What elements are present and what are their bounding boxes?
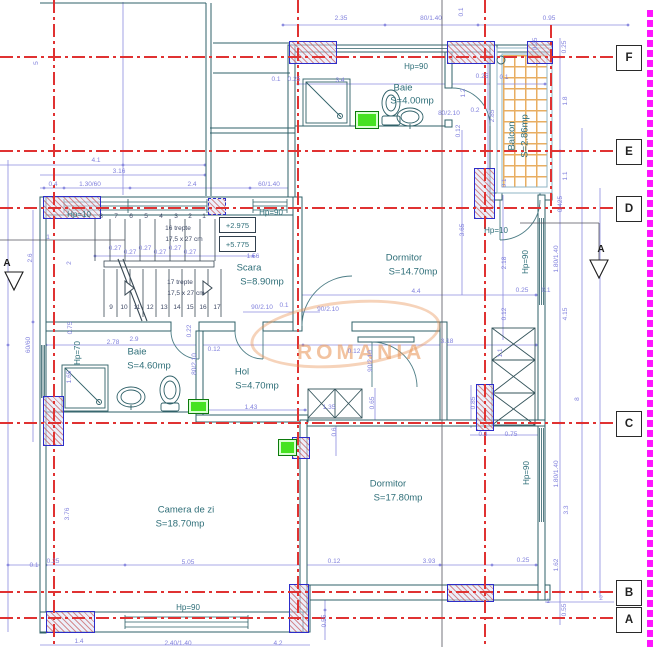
dim-label: 0.1 bbox=[541, 288, 550, 295]
dim-label: 3.76 bbox=[65, 508, 72, 521]
dim-label: 0.25 bbox=[517, 558, 530, 565]
dim-label: 2.78 bbox=[107, 340, 120, 347]
dim-label: 3.18 bbox=[441, 339, 454, 346]
dim-label: 80/2.10 bbox=[438, 111, 460, 118]
dim-label: 1.56 bbox=[247, 254, 260, 261]
dim-label: 1.2 bbox=[461, 88, 468, 97]
dim-label: 0.22 bbox=[187, 325, 194, 338]
stair-number: 9 bbox=[109, 305, 113, 312]
room-label: Hol bbox=[235, 367, 249, 377]
labels-layer: 2.3580/1.400.9550.10.250.250.10.250.250.… bbox=[0, 0, 656, 647]
dim-label: 1.62 bbox=[554, 559, 561, 572]
dim-label: 5.05 bbox=[182, 560, 195, 567]
section-letter: A bbox=[3, 259, 10, 269]
dim-label: 60/1.40 bbox=[258, 182, 280, 189]
stair-number: 17 bbox=[213, 305, 220, 312]
dim-label: 1.65 bbox=[67, 371, 74, 384]
dim-label: 3.4 bbox=[335, 78, 344, 85]
dim-label: 2.40/1.40 bbox=[164, 641, 191, 647]
dim-label: 1 bbox=[546, 599, 550, 606]
dim-label: 1.1 bbox=[563, 171, 570, 180]
section-letter: A bbox=[597, 245, 604, 255]
room-label: Baie bbox=[127, 347, 146, 357]
dim-label: 4.1 bbox=[91, 158, 100, 165]
stair-number: 14 bbox=[173, 305, 180, 312]
dim-label: 0.12 bbox=[328, 559, 341, 566]
dim-label: 0.1 bbox=[459, 7, 466, 16]
dim-label: 2 bbox=[599, 596, 603, 603]
stair-number: 1 bbox=[202, 214, 206, 221]
stair-number: 13 bbox=[160, 305, 167, 312]
room-label: S=4.60mp bbox=[127, 361, 171, 371]
room-label: S=18.70mp bbox=[156, 519, 205, 529]
room-label: S=14.70mp bbox=[389, 267, 438, 277]
stair-number: 4 bbox=[159, 214, 163, 221]
dim-label: 1.8 bbox=[563, 96, 570, 105]
dim-label: 2.85 bbox=[490, 110, 497, 123]
dim-label: 0.1 bbox=[29, 563, 38, 570]
height-label: Hp=70 bbox=[74, 341, 82, 365]
dim-label: 4.4 bbox=[411, 289, 420, 296]
dim-label: 3.93 bbox=[423, 559, 436, 566]
room-label: S=4.70mp bbox=[235, 381, 279, 391]
dim-label: 0.75 bbox=[505, 432, 518, 439]
dim-label: 60/60 bbox=[26, 337, 33, 353]
height-label: Hp=90 bbox=[176, 604, 200, 612]
stair-text: 17,5 x 27 cm bbox=[165, 237, 202, 244]
dim-label: 2.4 bbox=[187, 182, 196, 189]
height-label: Hp=90 bbox=[259, 209, 283, 217]
stair-number: 10 bbox=[120, 305, 127, 312]
dim-label: 0.85 bbox=[471, 397, 478, 410]
stair-number: 6 bbox=[129, 214, 133, 221]
height-label: Hp=90 bbox=[522, 250, 530, 274]
dim-label: 0.65 bbox=[370, 397, 377, 410]
dim-label: 3.16 bbox=[113, 169, 126, 176]
stair-number: 8 bbox=[99, 214, 103, 221]
dim-label: 0.4 bbox=[48, 182, 57, 189]
floor-plan: F E D C B A +2.975 +5.775 ROMANIA 2.3580… bbox=[0, 0, 656, 647]
dim-label: 5 bbox=[34, 61, 41, 65]
stair-text: 17,5 x 27 cm bbox=[167, 291, 204, 298]
stair-number: 2 bbox=[188, 214, 192, 221]
dim-label: 2.6 bbox=[28, 253, 35, 262]
dim-label: 0.1 bbox=[271, 77, 280, 84]
dim-label: 4.15 bbox=[563, 308, 570, 321]
dim-label: 0.25 bbox=[516, 288, 529, 295]
dim-label: 0.27 bbox=[139, 246, 152, 253]
dim-label: 0.27 bbox=[109, 246, 122, 253]
dim-label: 0.6 bbox=[332, 427, 339, 436]
dim-label: 90/2.10 bbox=[317, 307, 339, 314]
room-label: Camera de zi bbox=[158, 505, 215, 515]
dim-label: 1.30/60 bbox=[79, 182, 101, 189]
dim-label: 0.27 bbox=[184, 250, 197, 257]
dim-label: 0.425 bbox=[558, 196, 565, 212]
room-label: S=2.86mp bbox=[520, 114, 530, 158]
dim-label: 0.25 bbox=[533, 38, 540, 51]
room-label: S=8.90mp bbox=[240, 277, 284, 287]
room-label: Scara bbox=[237, 263, 262, 273]
height-label: Hp=90 bbox=[523, 461, 531, 485]
dim-label: 2.18 bbox=[502, 257, 509, 270]
dim-label: 8 bbox=[575, 397, 582, 401]
dim-label: 0.12 bbox=[208, 347, 221, 354]
dim-label: 0.12 bbox=[456, 125, 463, 138]
dim-label: 2 bbox=[67, 261, 74, 265]
dim-label: 0.1 bbox=[279, 303, 288, 310]
dim-label: 1.4 bbox=[74, 639, 83, 646]
dim-label: 1.35 bbox=[323, 405, 336, 412]
dim-label: 0.3 bbox=[478, 432, 487, 439]
room-label: S=4.00mp bbox=[390, 96, 434, 106]
dim-label: 0.55 bbox=[562, 604, 569, 617]
stair-number: 3 bbox=[174, 214, 178, 221]
dim-label: 1.80/1.40 bbox=[554, 245, 561, 272]
height-label: Hp=10 bbox=[67, 211, 91, 219]
dim-label: 0.12 bbox=[502, 308, 509, 321]
dim-label: 80/1.40 bbox=[420, 16, 442, 23]
room-label: Baie bbox=[393, 83, 412, 93]
stair-number: 5 bbox=[144, 214, 148, 221]
dim-label: 1 bbox=[46, 235, 50, 242]
dim-label: 0.25 bbox=[288, 77, 301, 84]
dim-label: 0.75 bbox=[68, 322, 75, 335]
dim-label: 0.27 bbox=[154, 250, 167, 257]
stair-number: 11 bbox=[134, 305, 141, 312]
room-label: Dormitor bbox=[370, 479, 406, 489]
dim-label: 0.1 bbox=[499, 75, 508, 82]
stair-text: 16 trepte bbox=[165, 226, 191, 233]
dim-label: 2.35 bbox=[335, 16, 348, 23]
stair-number: 15 bbox=[186, 305, 193, 312]
dim-label: 0.12 bbox=[348, 349, 361, 356]
dim-label: 4.2 bbox=[273, 641, 282, 647]
dim-label: 0.95 bbox=[543, 16, 556, 23]
dim-label: 90/2.10 bbox=[368, 350, 375, 372]
height-label: Hp=90 bbox=[404, 63, 428, 71]
stair-number: 7 bbox=[114, 214, 118, 221]
dim-label: 1.80/1.40 bbox=[554, 460, 561, 487]
dim-label: 1.1 bbox=[498, 348, 505, 357]
dim-label: 0.2 bbox=[470, 108, 479, 115]
stair-number: 16 bbox=[199, 305, 206, 312]
dim-label: 0.27 bbox=[169, 246, 182, 253]
dim-label: 3.3 bbox=[564, 505, 571, 514]
stair-number: 12 bbox=[146, 305, 153, 312]
dim-label: 90/2.10 bbox=[251, 305, 273, 312]
dim-label: 0.25 bbox=[47, 559, 60, 566]
dim-label: 3.65 bbox=[460, 224, 467, 237]
dim-label: 0.1 bbox=[502, 178, 509, 187]
room-label: Dormitor bbox=[386, 253, 422, 263]
height-label: Hp=10 bbox=[484, 227, 508, 235]
dim-label: 0.27 bbox=[124, 250, 137, 257]
room-label: S=17.80mp bbox=[374, 493, 423, 503]
dim-label: 0.55 bbox=[322, 615, 329, 628]
dim-label: 0.25 bbox=[476, 74, 489, 81]
dim-label: 1.43 bbox=[245, 405, 258, 412]
room-label: Balcon bbox=[507, 121, 517, 150]
dim-label: 80/2.10 bbox=[192, 353, 199, 375]
dim-label: 0.25 bbox=[562, 41, 569, 54]
dim-label: 2.9 bbox=[129, 337, 138, 344]
stair-text: 17 trepte bbox=[167, 280, 193, 287]
